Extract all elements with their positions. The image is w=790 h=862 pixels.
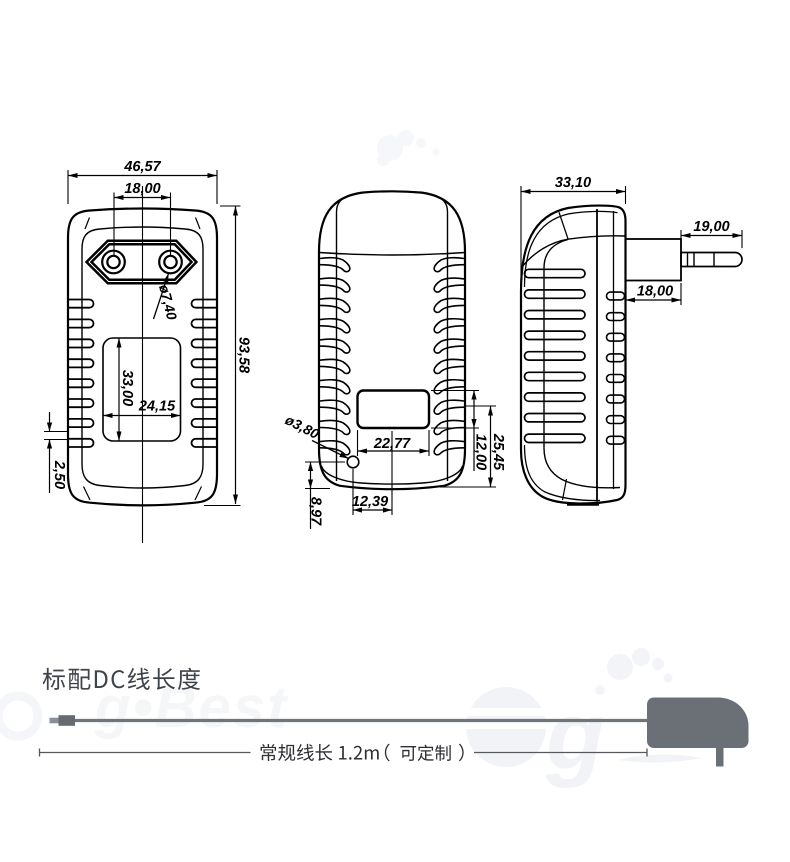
svg-text:g: g [545,682,605,789]
